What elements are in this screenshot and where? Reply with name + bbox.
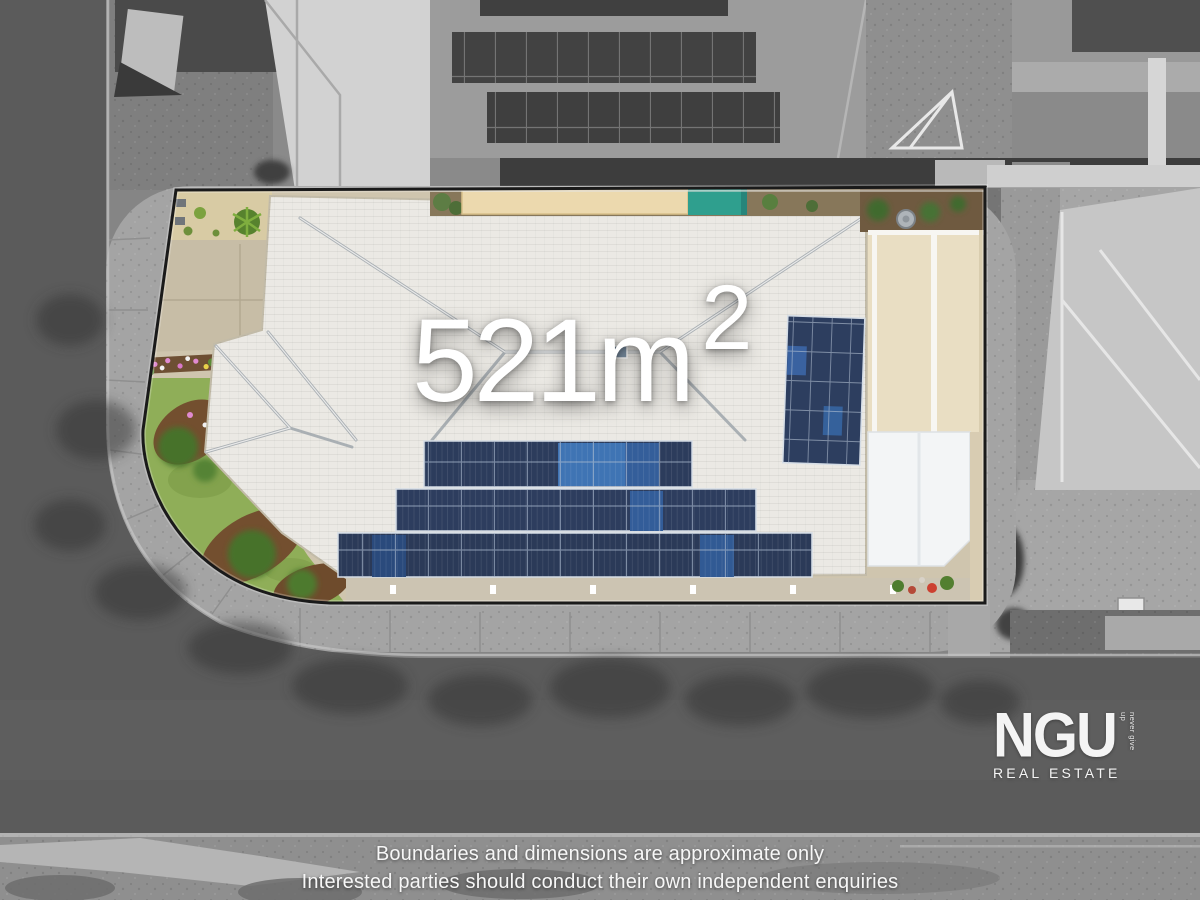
top-neighbour-zone (0, 0, 1200, 190)
ngu-brand-text: NGU (993, 711, 1116, 762)
teal-cover (688, 188, 747, 215)
disclaimer-line2: Interested parties should conduct their … (0, 869, 1200, 897)
ngu-logo: NGU never give up REAL ESTATE (993, 712, 1153, 781)
white-awning (868, 432, 970, 566)
ngu-tagline-vertical: never give up (1119, 712, 1137, 762)
disclaimer: Boundaries and dimensions are approximat… (0, 841, 1200, 896)
area-value: 521m (412, 300, 691, 424)
patio-roof (868, 230, 985, 432)
area-label: 521m 2 (412, 300, 752, 424)
cream-cover (462, 190, 688, 214)
disclaimer-line1: Boundaries and dimensions are approximat… (0, 841, 1200, 869)
area-superscript: 2 (701, 272, 752, 364)
aerial-property-photo: 521m 2 NGU never give up REAL ESTATE Bou… (0, 0, 1200, 900)
solar-array-right (783, 316, 865, 466)
